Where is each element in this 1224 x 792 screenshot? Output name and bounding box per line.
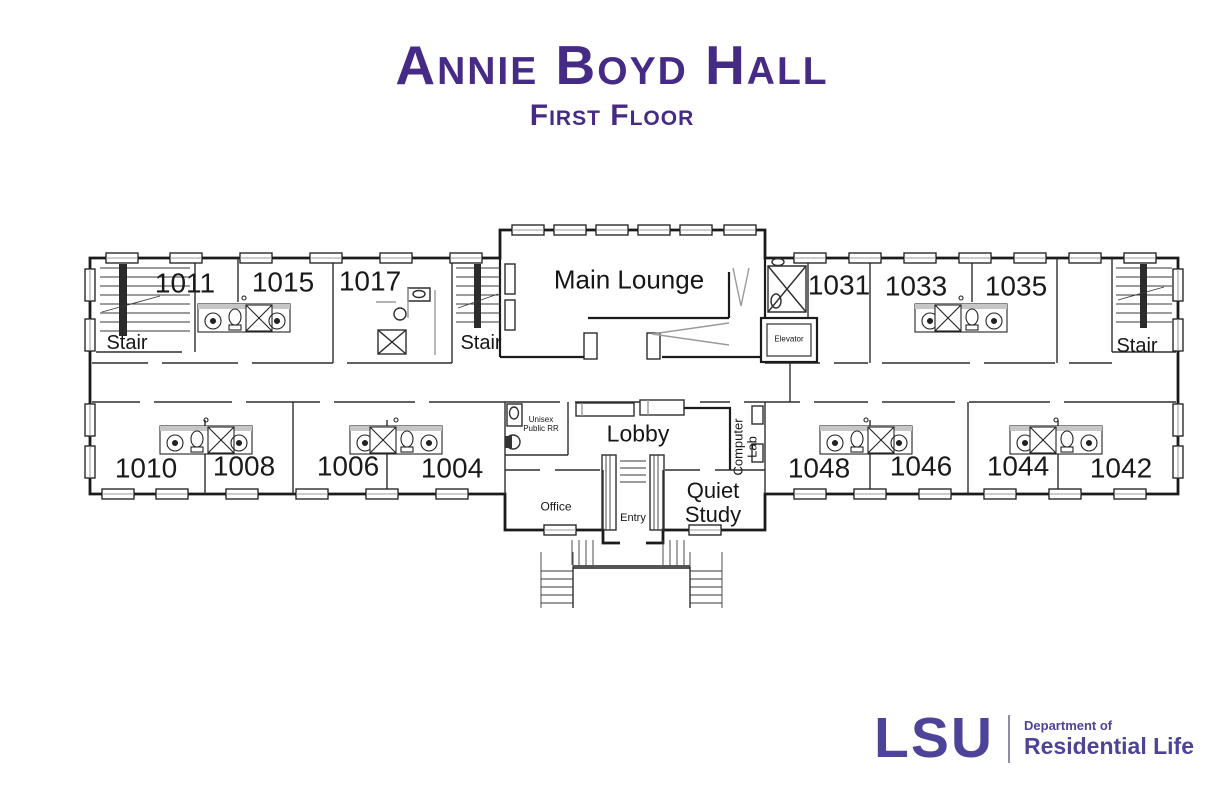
stair-label-left: Stair [106, 332, 147, 354]
floor-plan-drawing [0, 0, 1224, 792]
room-label-1042: 1042 [1090, 454, 1152, 485]
department-prefix: Department of [1024, 718, 1194, 734]
room-label-1017: 1017 [339, 267, 401, 298]
department-name: Residential Life [1024, 734, 1194, 759]
logo-divider [1008, 715, 1010, 763]
room-label-1015: 1015 [252, 268, 314, 299]
stair-label-mid: Stair [460, 332, 501, 354]
elevator-label: Elevator [774, 336, 803, 345]
room-label-1008: 1008 [213, 452, 275, 483]
lobby-label: Lobby [607, 421, 670, 446]
entry-label: Entry [620, 512, 646, 524]
room-label-1035: 1035 [985, 272, 1047, 303]
room-label-1033: 1033 [885, 272, 947, 303]
unisex-restroom-label: Unisex Public RR [518, 416, 564, 434]
office-label: Office [540, 500, 571, 513]
main-lounge-label: Main Lounge [554, 266, 704, 295]
room-label-1006: 1006 [317, 452, 379, 483]
footer-branding: LSU Department of Residential Life [874, 710, 1194, 767]
computer-lab-label: Computer Lab [732, 416, 761, 478]
room-label-1010: 1010 [115, 454, 177, 485]
lsu-logo: LSU [874, 710, 994, 767]
room-label-1048: 1048 [788, 454, 850, 485]
room-label-1004: 1004 [421, 454, 483, 485]
room-label-1031: 1031 [808, 271, 870, 302]
department-lockup: Department of Residential Life [1024, 718, 1194, 759]
room-label-1046: 1046 [890, 452, 952, 483]
page-root: Annie Boyd Hall First Floor [0, 0, 1224, 792]
stair-label-right: Stair [1116, 335, 1157, 357]
room-label-1011: 1011 [155, 269, 215, 300]
quiet-study-label: Quiet Study [668, 479, 758, 527]
room-label-1044: 1044 [987, 452, 1049, 483]
